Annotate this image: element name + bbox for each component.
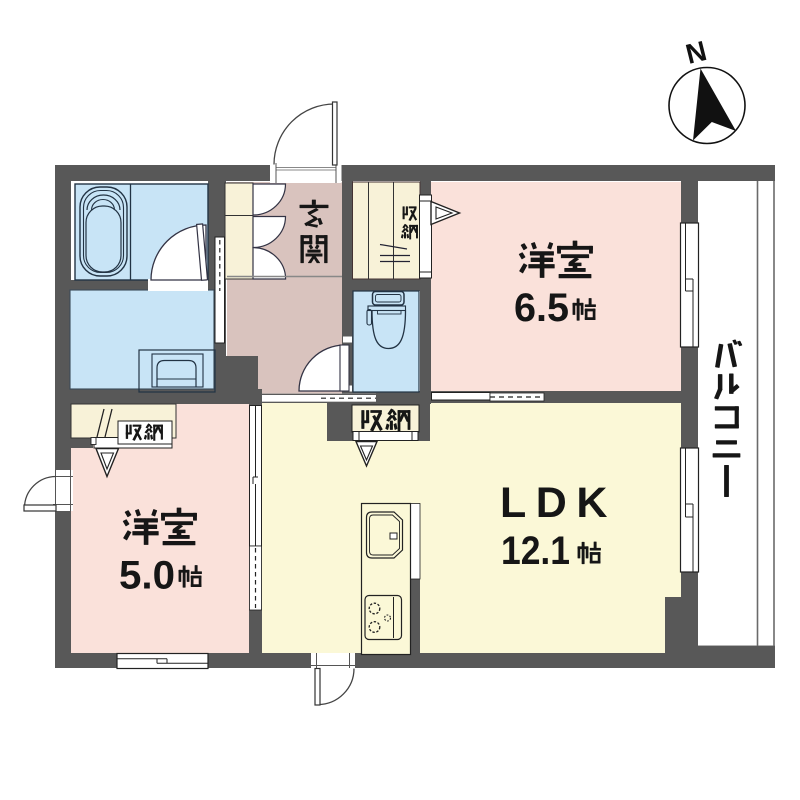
svg-text:5.0: 5.0: [119, 554, 175, 598]
svg-text:12.1: 12.1: [501, 529, 570, 573]
svg-text:6.5: 6.5: [514, 286, 569, 330]
svg-text:LDK: LDK: [500, 479, 617, 527]
